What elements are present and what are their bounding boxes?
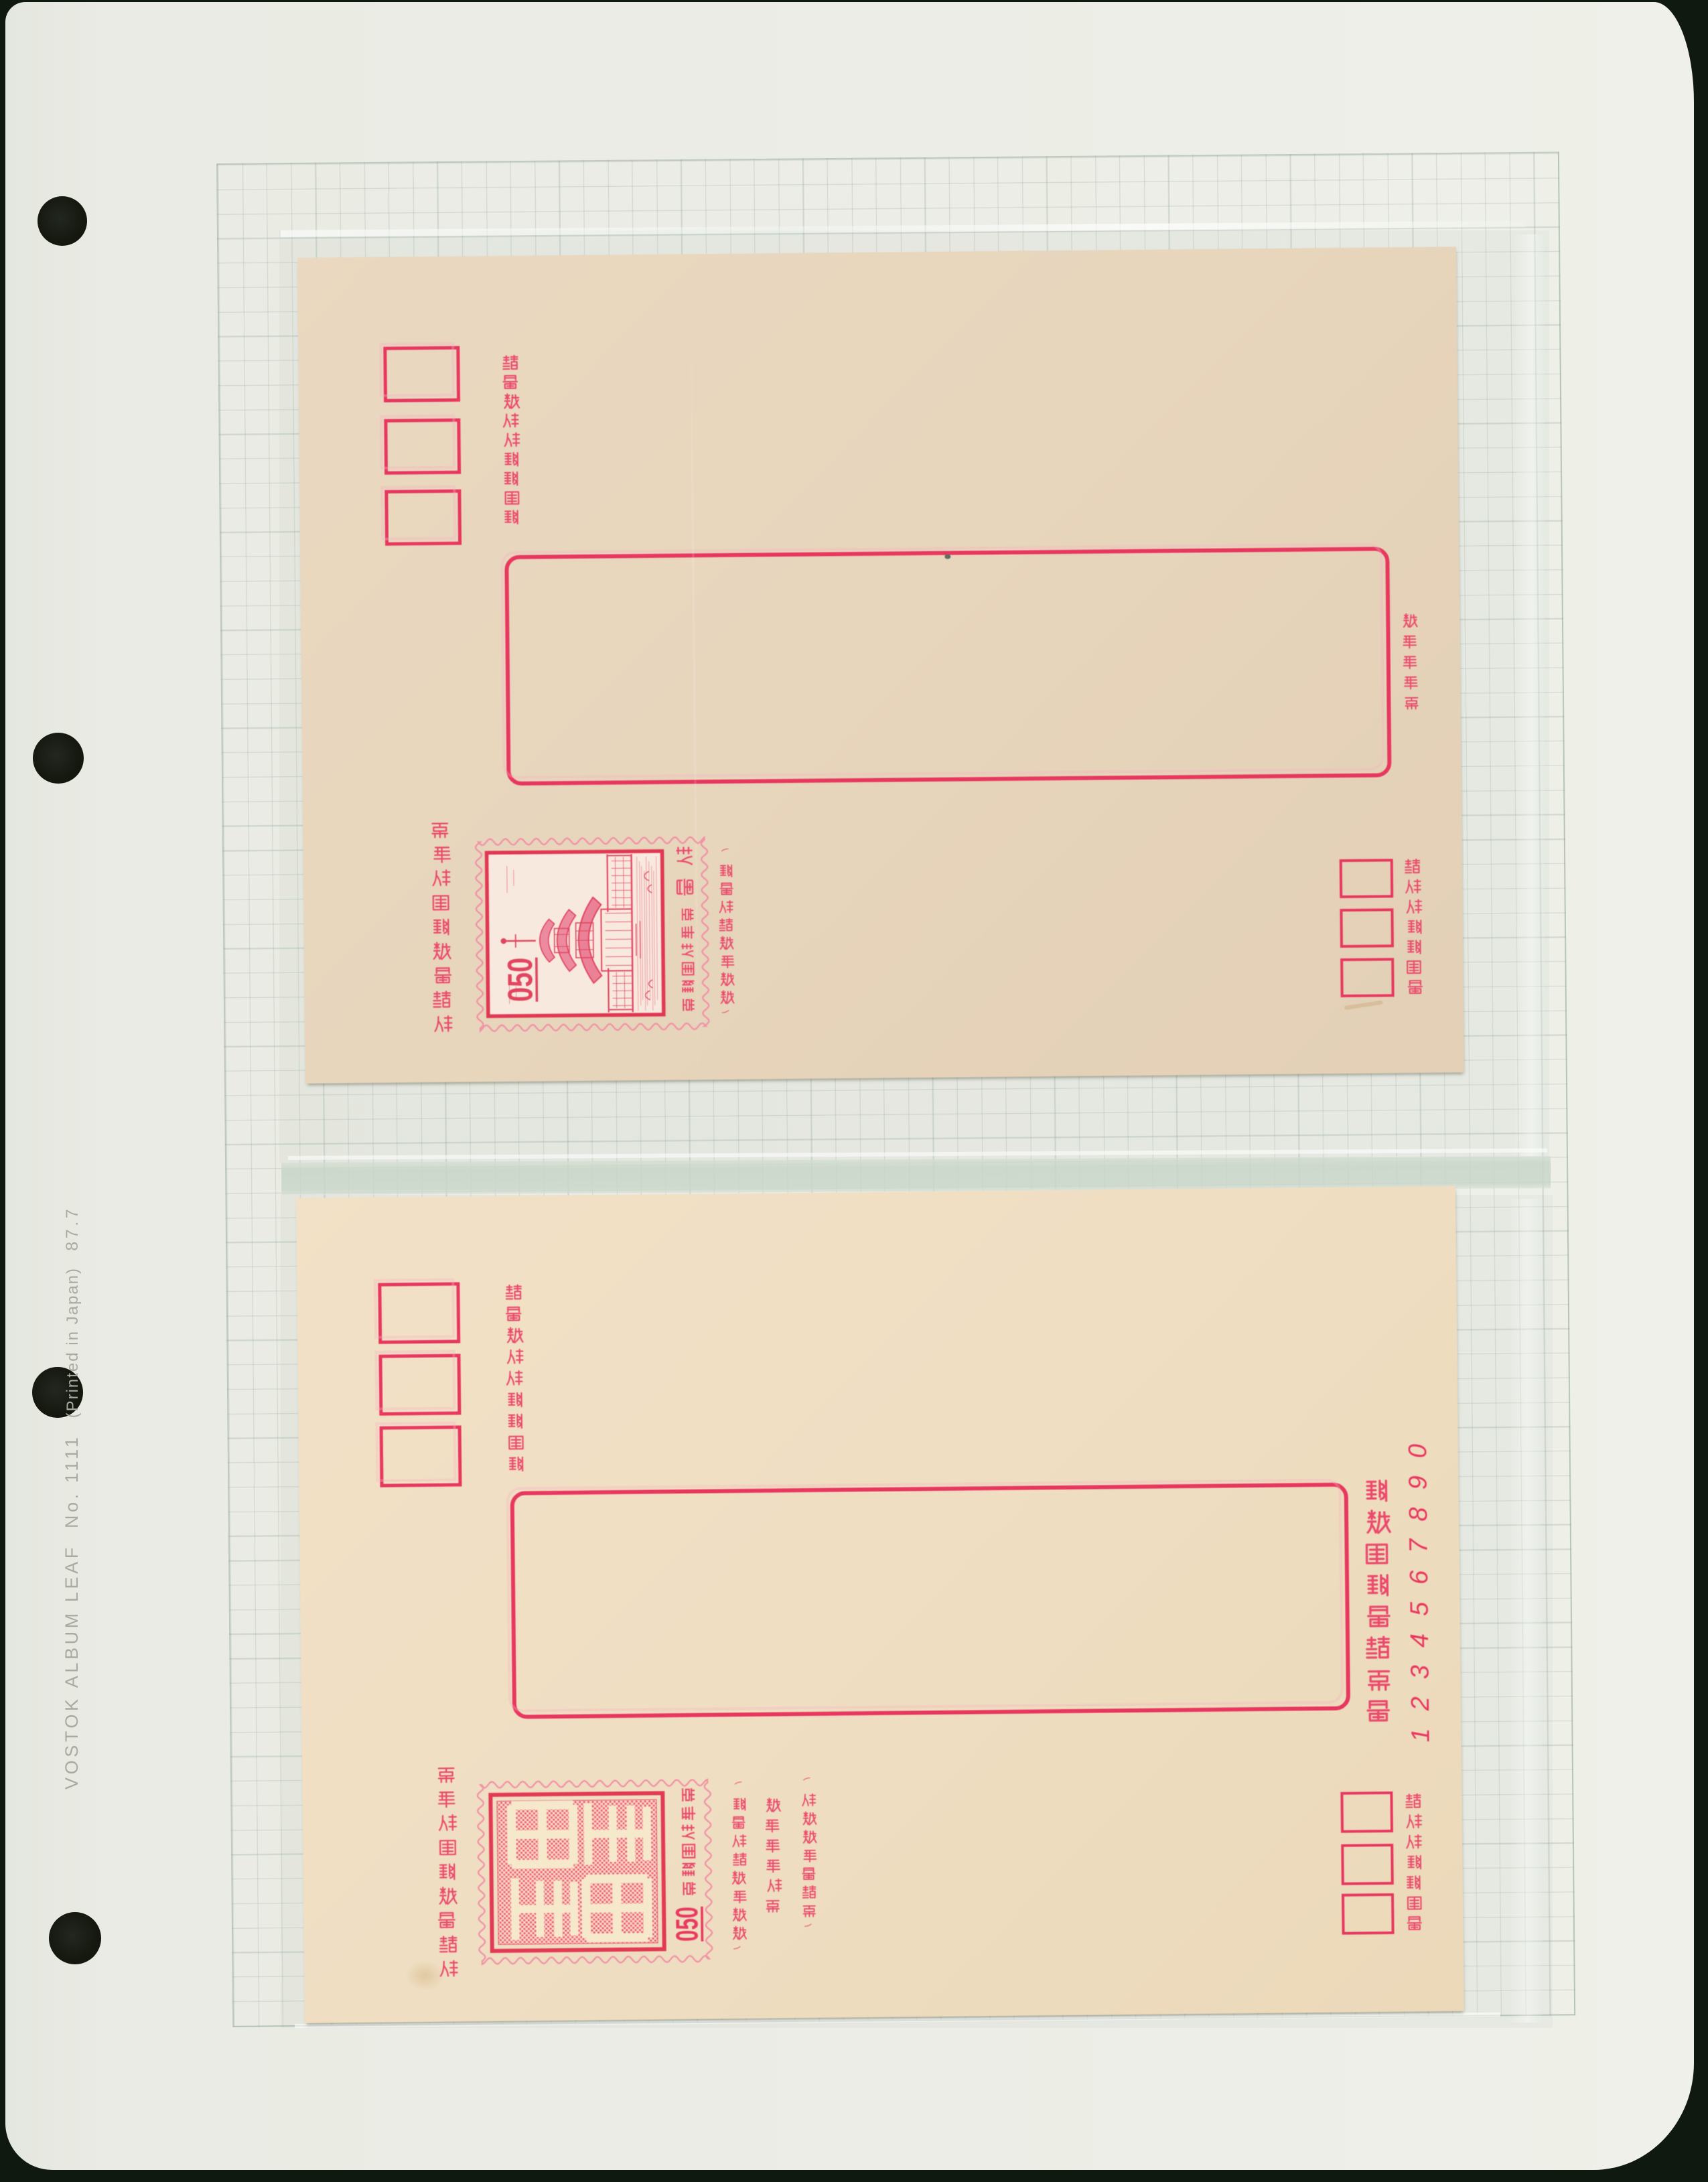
svg-text:050: 050 bbox=[501, 958, 541, 1003]
svg-text:050: 050 bbox=[669, 1907, 705, 1942]
